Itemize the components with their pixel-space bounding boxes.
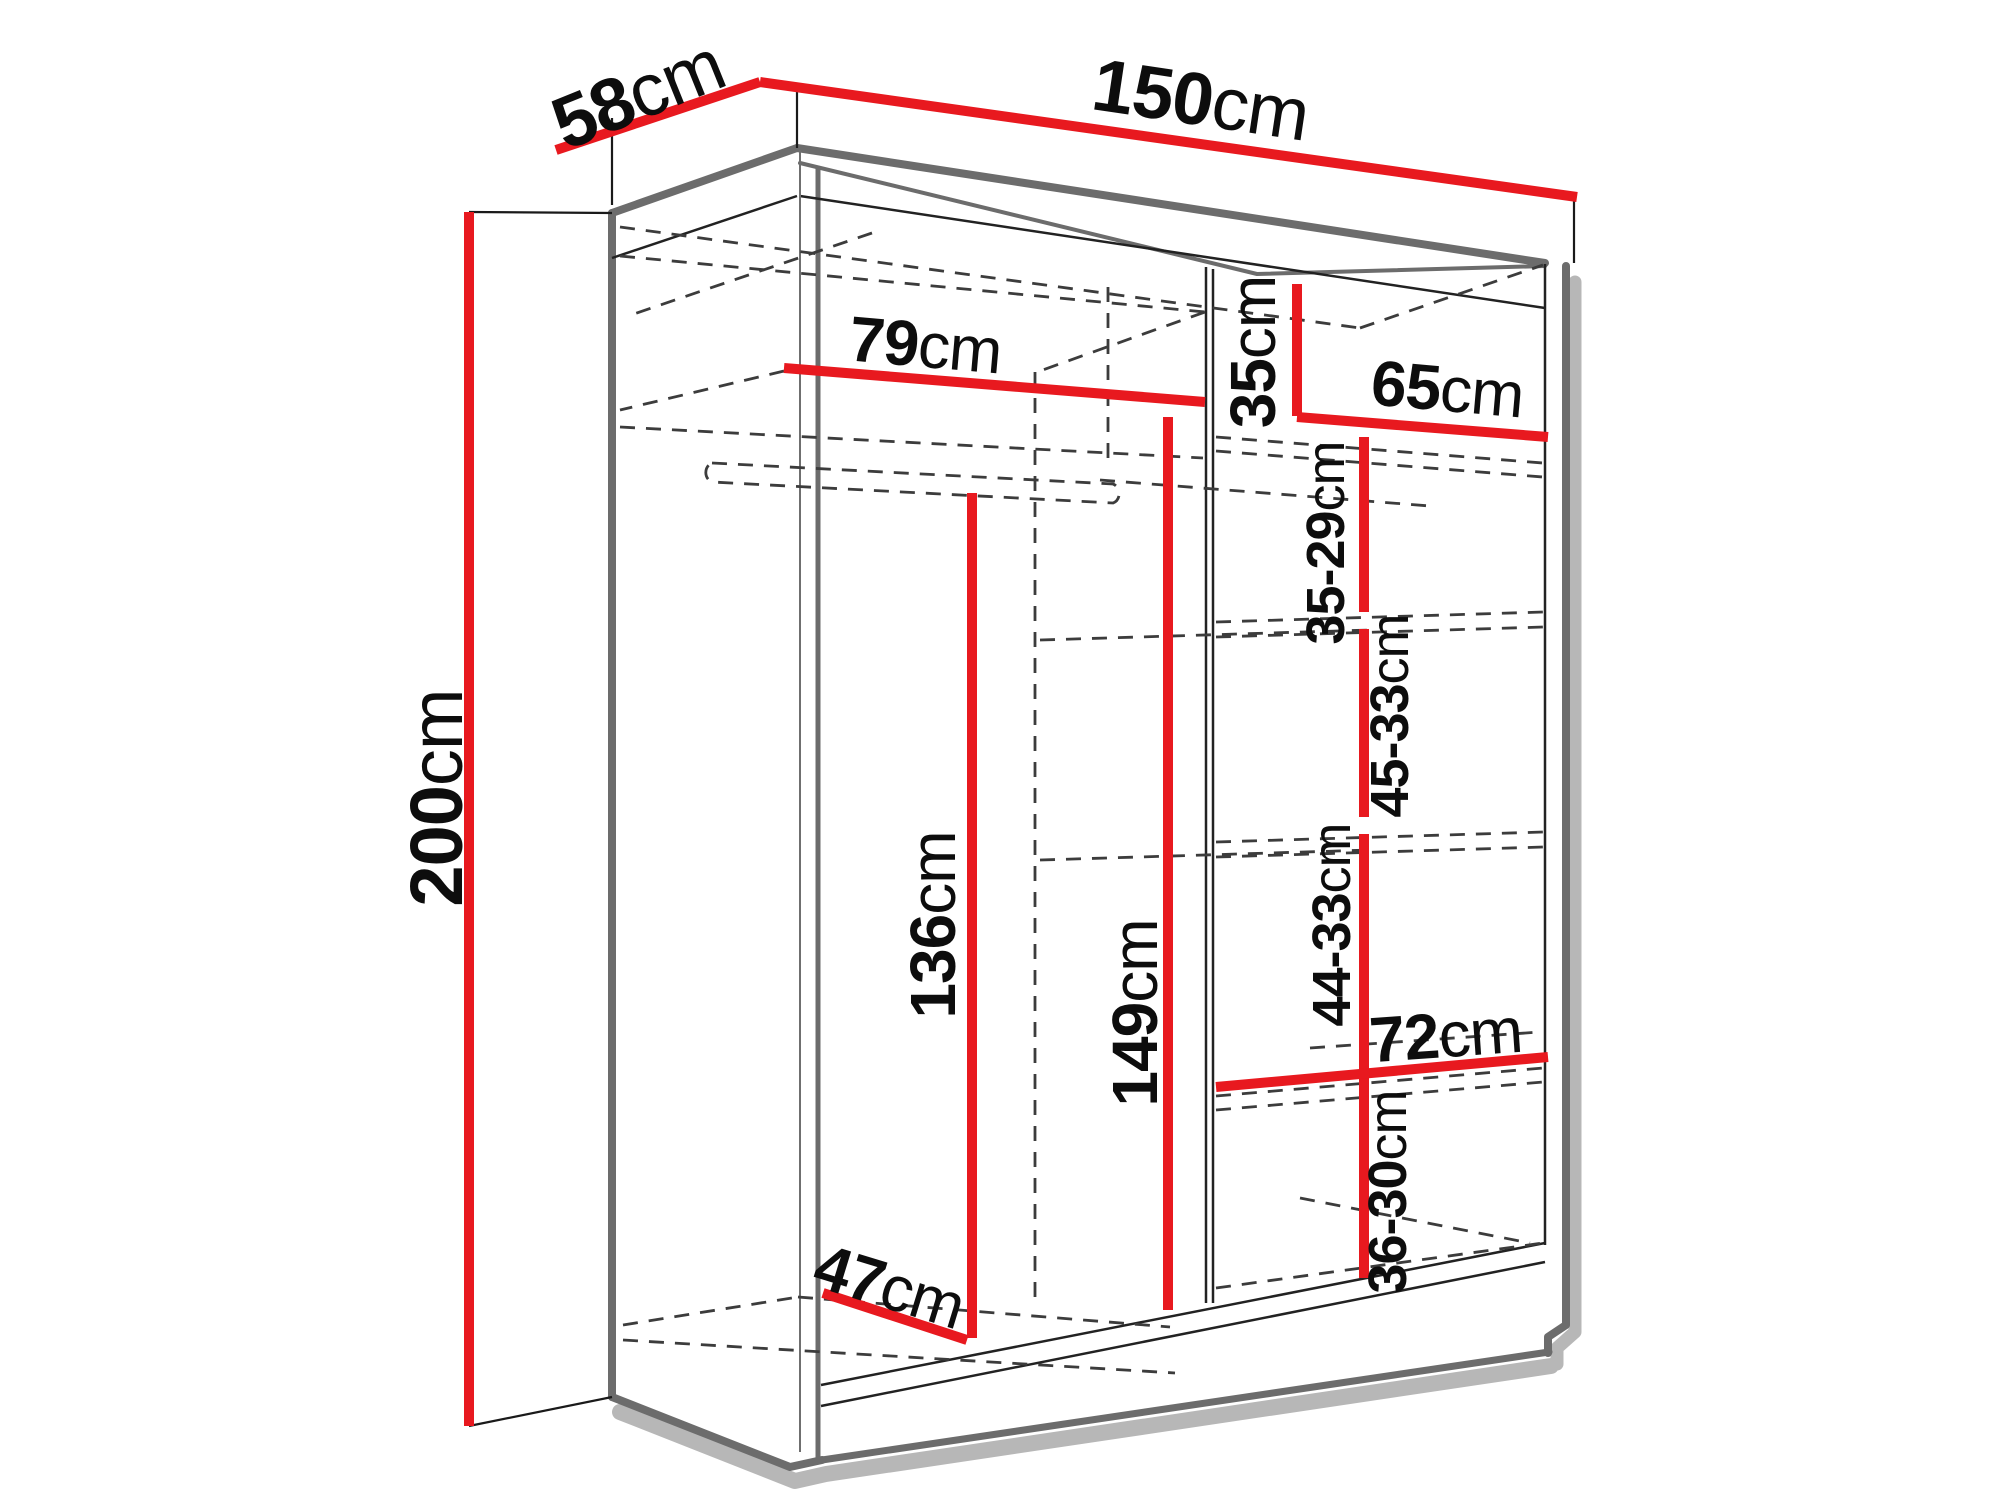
leader-height-bottom xyxy=(469,1397,612,1426)
hidden-divider-top-depth xyxy=(1037,312,1205,372)
label-right-shelf-width: 65cm xyxy=(1368,346,1526,431)
label-cubby-2: 45-33cm xyxy=(1360,614,1420,817)
label-top-cubby-height: 35cm xyxy=(1217,276,1289,429)
label-left-section-height: 149cm xyxy=(1099,919,1171,1106)
hidden-left-shelf-front xyxy=(620,427,1203,458)
edge-top-front xyxy=(797,148,1545,263)
label-height: 200cm xyxy=(395,689,478,906)
edge-top-left-panel xyxy=(612,148,797,213)
shelf1-front-top xyxy=(1216,437,1543,463)
shelf3-front-top xyxy=(1216,832,1543,842)
hidden-left-shelf-depth xyxy=(620,371,784,410)
shelf1-back xyxy=(1100,480,1430,506)
label-bottom-shelf-width: 72cm xyxy=(1367,994,1524,1076)
wardrobe-dimension-diagram: 58cm 150cm 200cm 79cm 35cm 65cm 35-29cm … xyxy=(0,0,2000,1500)
edge-bottom-front xyxy=(822,1352,1549,1460)
wardrobe-outline xyxy=(612,148,1566,1467)
edge-right-front xyxy=(1548,266,1566,1353)
diagram-canvas: 58cm 150cm 200cm 79cm 35cm 65cm 35-29cm … xyxy=(0,0,2000,1500)
leader-height-top xyxy=(469,212,612,213)
label-cubby-3: 44-33cm xyxy=(1302,823,1362,1026)
hidden-top-shelf-back xyxy=(620,256,1205,312)
label-hanging-height: 136cm xyxy=(897,831,969,1018)
label-depth: 58cm xyxy=(540,22,735,165)
shelf3-front-bottom xyxy=(1216,847,1543,857)
floor-left-depth xyxy=(623,1297,798,1325)
label-left-shelf-width: 79cm xyxy=(846,302,1004,387)
label-width: 150cm xyxy=(1087,42,1314,156)
label-floor-depth: 47cm xyxy=(806,1229,973,1342)
cornice-bottom-front xyxy=(800,196,1545,308)
hanging-rail xyxy=(706,463,1119,503)
label-cubby-4: 36-30cm xyxy=(1358,1090,1418,1293)
label-cubby-1: 35-29cm xyxy=(1296,441,1356,644)
shelf1-front-bottom xyxy=(1216,451,1543,477)
hidden-top-right-depth xyxy=(1360,265,1543,328)
floor-left-back xyxy=(623,1340,1175,1373)
